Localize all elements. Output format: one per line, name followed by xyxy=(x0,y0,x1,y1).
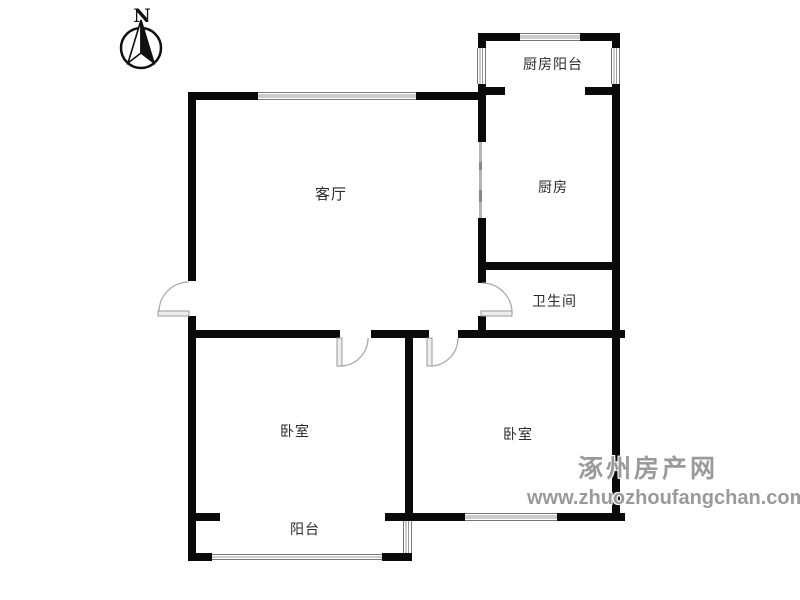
room-label-bedroom-left: 卧室 xyxy=(280,424,310,438)
window-living-top xyxy=(258,92,416,100)
wall-kitchen-bath-divider xyxy=(486,262,612,270)
window-balcony-bottom xyxy=(212,554,382,560)
door-symbols-layer xyxy=(0,0,800,600)
wall-middle-center xyxy=(371,330,429,338)
wall-left-lower xyxy=(188,316,196,561)
wall-bedroom2-bottom-right xyxy=(557,513,625,521)
wall-bedroom-divider xyxy=(405,338,413,520)
wall-living-top-right xyxy=(416,92,485,100)
wall-kb-right-upper xyxy=(612,33,620,48)
room-label-living: 客厅 xyxy=(315,187,347,202)
room-label-kitchen: 厨房 xyxy=(538,180,568,194)
wall-kb-left-upper xyxy=(478,33,486,48)
window-kb-left xyxy=(477,48,486,84)
kitchen-door-opening xyxy=(479,142,482,218)
watermark-site-url: www.zhuozhoufangchan.com xyxy=(527,488,800,508)
bathroom-door-arc xyxy=(482,283,512,313)
wall-kitchen-left-upper xyxy=(478,95,486,142)
entrance-door-arc xyxy=(159,282,189,312)
bedroom-left-door xyxy=(337,338,368,366)
bedroom-right-door-arc xyxy=(430,338,458,366)
wall-balcony-bottom-left xyxy=(188,553,212,561)
room-label-bedroom-right: 卧室 xyxy=(503,427,533,441)
wall-left-upper xyxy=(188,92,196,281)
watermark-site-name: 涿州房产网 xyxy=(578,457,718,482)
bedroom-left-door-leaf xyxy=(337,338,342,366)
north-arrow: N xyxy=(112,0,172,80)
bathroom-door xyxy=(481,283,512,316)
wall-living-top-left xyxy=(188,92,258,100)
wall-kb-bottom-left-stub xyxy=(478,87,505,95)
wall-middle-right xyxy=(458,330,625,338)
window-balcony-right xyxy=(403,521,412,557)
window-kb-top xyxy=(520,33,580,41)
entrance-door xyxy=(158,282,189,316)
floorplan-canvas: N xyxy=(0,0,800,600)
wall-bedroom2-bottom-left xyxy=(413,513,465,521)
room-label-balcony: 阳台 xyxy=(290,522,320,536)
wall-balcony-bottom-right xyxy=(382,553,412,561)
wall-kitchen-left-lower xyxy=(478,218,486,283)
bedroom-right-door xyxy=(427,338,458,366)
room-label-bathroom: 卫生间 xyxy=(532,294,577,308)
window-bedroom2-bottom xyxy=(465,513,557,521)
wall-middle-left xyxy=(188,330,340,338)
bedroom-right-door-leaf xyxy=(427,338,432,366)
entrance-door-leaf xyxy=(158,311,189,316)
room-label-kitchen-balcony: 厨房阳台 xyxy=(523,57,583,71)
wall-right-main xyxy=(612,84,620,515)
bedroom-left-door-arc xyxy=(340,338,368,366)
wall-balcony-top-right-stub xyxy=(385,513,413,521)
wall-balcony-top-left-stub xyxy=(188,513,220,521)
window-kb-right xyxy=(611,48,620,84)
